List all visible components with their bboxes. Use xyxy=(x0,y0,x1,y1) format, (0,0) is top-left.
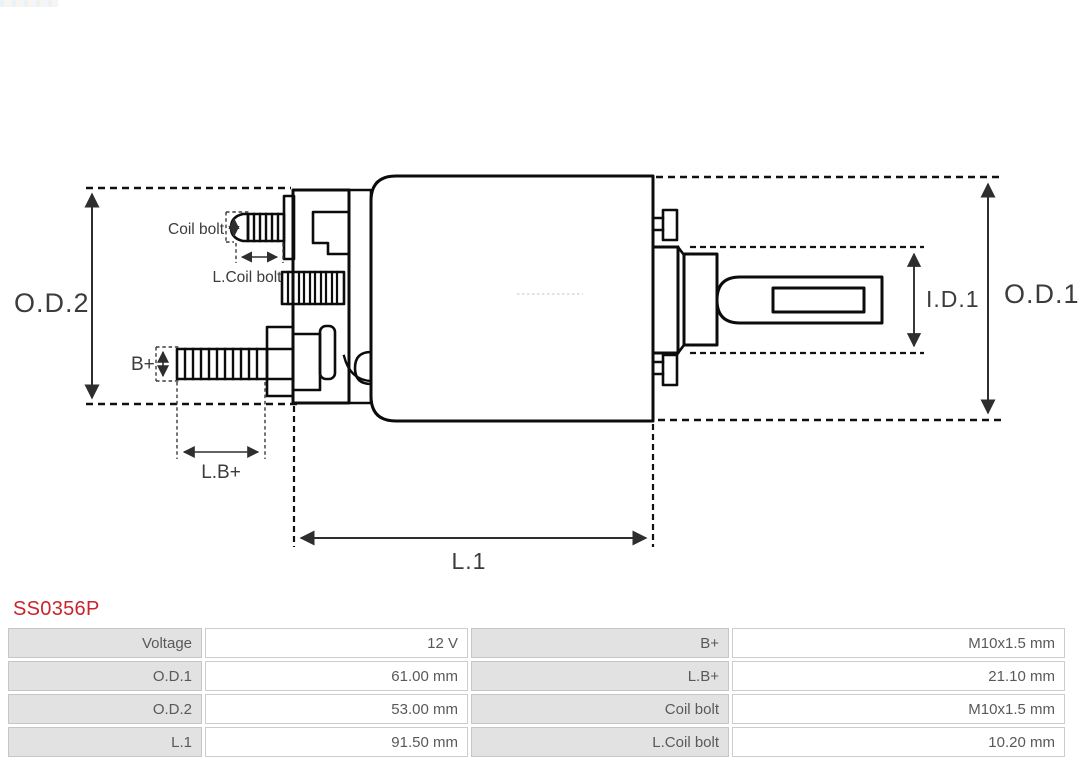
b-plus-dimension: B+ xyxy=(131,347,179,381)
solenoid-body-shape xyxy=(284,176,653,421)
dim-label-od1: O.D.1 xyxy=(1004,279,1080,309)
spec-value: M10x1.5 mm xyxy=(732,694,1065,724)
spec-table: Voltage 12 V B+ M10x1.5 mm O.D.1 61.00 m… xyxy=(8,628,1065,757)
spec-value: M10x1.5 mm xyxy=(732,628,1065,658)
od1-dimension: O.D.1 xyxy=(656,177,1080,420)
l1-dimension: L.1 xyxy=(294,406,653,574)
spec-label: L.B+ xyxy=(471,661,729,691)
id1-dimension: I.D.1 xyxy=(690,247,980,353)
lb-plus-dimension: L.B+ xyxy=(177,382,265,483)
spec-value: 10.20 mm xyxy=(732,727,1065,757)
spec-label: B+ xyxy=(471,628,729,658)
dim-label-coil-bolt: Coil bolt xyxy=(168,221,225,238)
mounting-screw-top-shape xyxy=(653,210,677,240)
plunger-shape xyxy=(653,247,882,353)
part-number-link[interactable]: SS0356P xyxy=(13,597,100,621)
spec-label: Coil bolt xyxy=(471,694,729,724)
spec-value: 21.10 mm xyxy=(732,661,1065,691)
l-coil-bolt-dimension: L.Coil bolt xyxy=(213,243,283,286)
technical-drawing: O.D.2 O.D.1 I.D.1 L.1 B+ L.B+ xyxy=(0,0,1080,590)
dim-label-lb-plus: L.B+ xyxy=(201,462,241,483)
spec-label: O.D.2 xyxy=(8,694,202,724)
spec-value: 91.50 mm xyxy=(205,727,468,757)
coil-terminal-bushing-shape xyxy=(282,272,344,304)
spec-label: Voltage xyxy=(8,628,202,658)
dim-label-l-coil-bolt: L.Coil bolt xyxy=(213,269,283,286)
dim-label-id1: I.D.1 xyxy=(926,286,980,312)
spec-value: 12 V xyxy=(205,628,468,658)
spec-value: 61.00 mm xyxy=(205,661,468,691)
dim-label-l1: L.1 xyxy=(452,548,487,574)
dim-label-b-plus: B+ xyxy=(131,354,155,375)
spec-label: L.Coil bolt xyxy=(471,727,729,757)
dim-label-od2: O.D.2 xyxy=(14,288,90,318)
b-plus-terminal-shape xyxy=(177,326,335,396)
spec-label: L.1 xyxy=(8,727,202,757)
coil-bolt-shape xyxy=(231,214,284,241)
mounting-screw-bottom-shape xyxy=(653,355,677,385)
spec-value: 53.00 mm xyxy=(205,694,468,724)
product-drawing-page: O.D.2 O.D.1 I.D.1 L.1 B+ L.B+ xyxy=(0,0,1080,767)
spec-label: O.D.1 xyxy=(8,661,202,691)
